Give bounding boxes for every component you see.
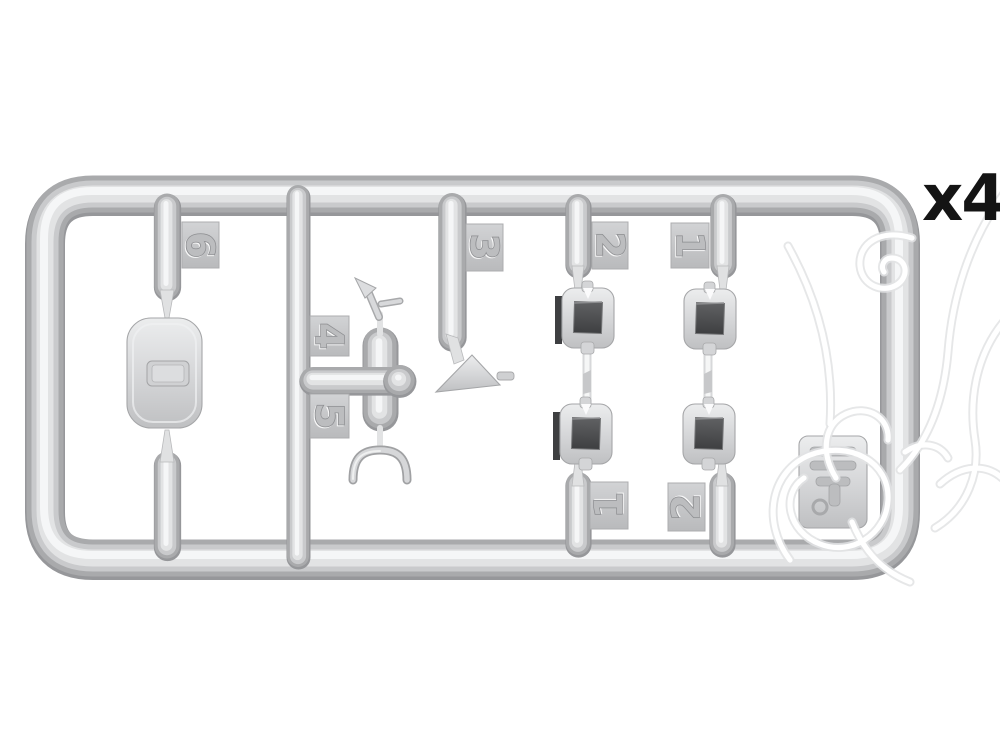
part-tag-5-number: 5 (307, 403, 351, 429)
product-photo: 6 4 5 3 2 1 1 2 (0, 0, 1000, 750)
part-tag-1-top-number: 1 (668, 232, 712, 258)
part-tag-6: 6 (178, 222, 222, 268)
part-periscope-bottom-left (553, 397, 612, 470)
part-periscope-top-right (684, 282, 736, 355)
part-grab-handle (353, 450, 407, 480)
part-tag-3: 3 (462, 224, 506, 271)
part-tag-5: 5 (307, 394, 351, 438)
part-triangle-bracket (436, 355, 514, 392)
spindle-gate-right (704, 350, 712, 404)
sprue-photo-canvas: 6 4 5 3 2 1 1 2 (0, 0, 1000, 750)
part-tag-1-bottom: 1 (587, 482, 631, 529)
part-tag-4-number: 4 (307, 323, 351, 349)
quantity-label: x4 (922, 162, 1000, 236)
part-hatch-plate (127, 318, 202, 428)
part-tag-1-bottom-number: 1 (587, 492, 631, 518)
part-tag-2-bottom-number: 2 (664, 494, 708, 520)
part-tag-3-number: 3 (462, 234, 506, 260)
part-tag-2-top-number: 2 (588, 232, 632, 258)
part-tag-1-top: 1 (668, 223, 712, 268)
part-tag-4: 4 (307, 316, 351, 356)
part-periscope-bottom-right (683, 397, 735, 470)
part-periscope-top-left (555, 281, 614, 354)
part-tag-2-top: 2 (588, 222, 632, 269)
spindle-gate-left (583, 350, 591, 404)
part-lever (355, 278, 400, 317)
part-tag-2-bottom: 2 (664, 483, 708, 531)
sprue-runners (166, 194, 724, 558)
part-tag-6-number: 6 (178, 232, 222, 258)
